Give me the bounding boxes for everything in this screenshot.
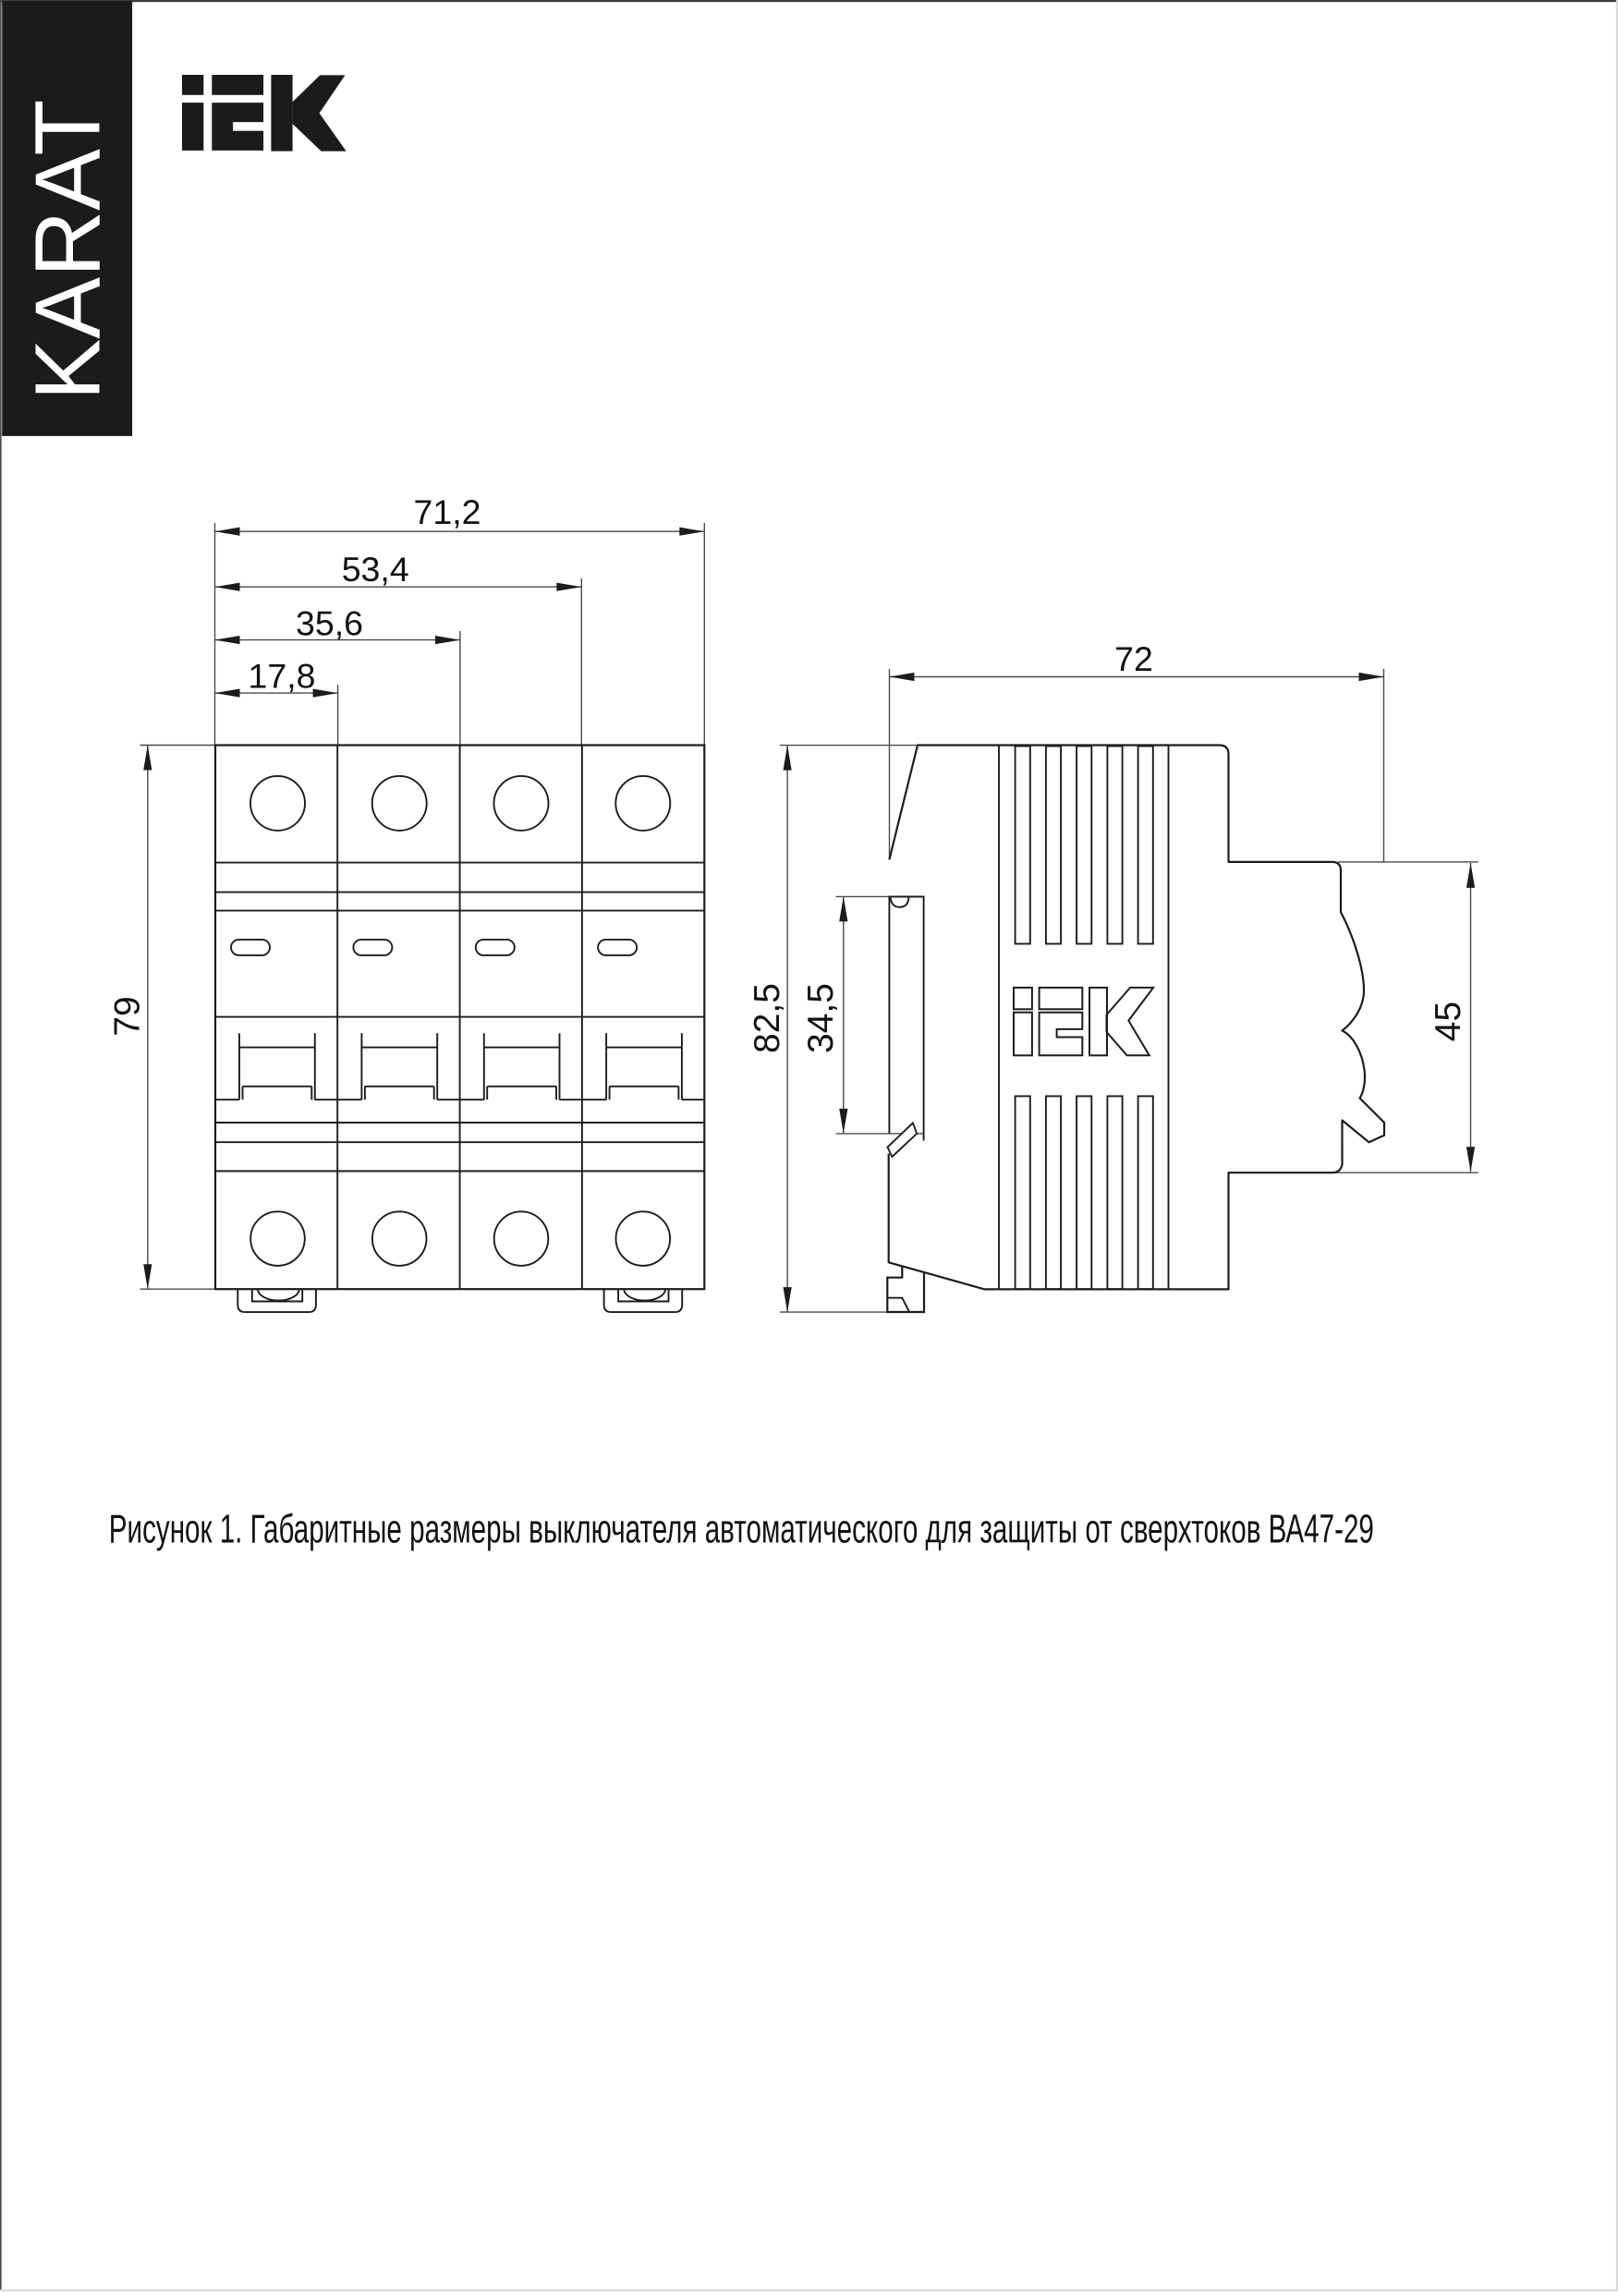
svg-text:79: 79 [107,996,147,1036]
svg-text:71,2: 71,2 [414,492,481,531]
svg-text:34,5: 34,5 [801,983,841,1053]
svg-text:Рисунок 1. Габаритные размеры: Рисунок 1. Габаритные размеры выключател… [109,1506,1374,1551]
svg-text:45: 45 [1429,1002,1468,1041]
svg-text:72: 72 [1114,639,1153,678]
svg-text:17,8: 17,8 [249,657,316,696]
svg-text:35,6: 35,6 [296,604,363,643]
svg-text:82,5: 82,5 [748,983,787,1053]
svg-text:KARAT: KARAT [17,100,120,401]
svg-text:53,4: 53,4 [342,550,409,589]
